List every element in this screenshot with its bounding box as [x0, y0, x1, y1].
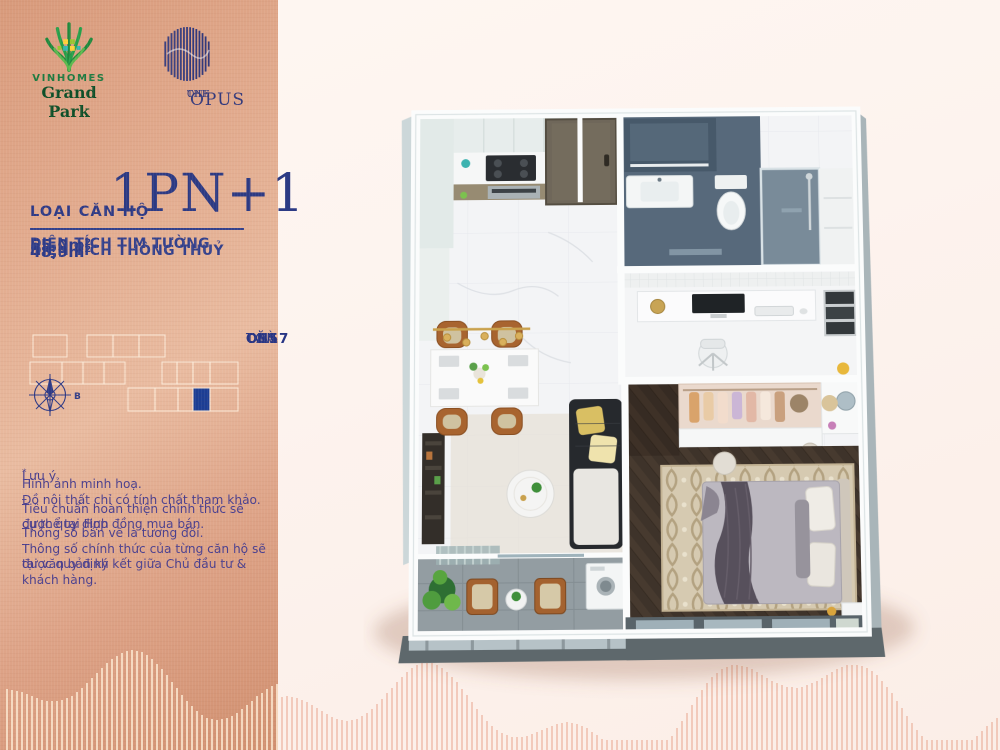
grid-cell — [178, 388, 193, 411]
pillow — [807, 542, 835, 587]
grid-cell — [30, 362, 62, 384]
building-label: TOÀ — [246, 331, 276, 348]
washing-machine — [586, 563, 625, 609]
the-opus-one-logo: THEOPUSONE — [132, 24, 242, 90]
info-panel: VINHOMES Grand Park THEOPUSONE LOẠI CĂN … — [0, 0, 278, 750]
door-handle — [604, 154, 609, 166]
dining-chair — [437, 408, 468, 435]
area-label: DIỆN TÍCH TIM TƯỜNG — [30, 236, 210, 252]
balcony-sliding-door — [498, 555, 584, 556]
utility-niche — [819, 168, 857, 265]
balcony-table — [506, 589, 527, 610]
grid-cell — [104, 362, 125, 384]
wardrobe — [679, 383, 823, 447]
grid-cell — [210, 388, 238, 411]
toilet-tank — [715, 175, 747, 189]
unit-number-label: CĂN — [246, 331, 277, 348]
sofa — [569, 399, 623, 549]
grid-cell — [193, 362, 210, 384]
pouf — [713, 452, 736, 475]
floor-drain — [669, 249, 722, 255]
tv-cabinet — [422, 433, 445, 544]
unit-type-label: LOẠI CĂN HỘ — [30, 204, 149, 220]
vinhomes-grand-park-logo: VINHOMES Grand Park — [26, 20, 112, 121]
floor-plan-render — [370, 82, 926, 688]
unit-number-value: CH17 — [246, 331, 289, 348]
grid-cell — [87, 335, 113, 357]
gold-urn — [651, 299, 665, 313]
unit-type-value: 1PN+1 — [110, 168, 305, 220]
gray-bolster — [795, 500, 811, 579]
grid-cell — [33, 335, 67, 357]
bed — [700, 479, 852, 607]
area-value: 48,9m² — [30, 243, 91, 261]
grid-cell — [128, 388, 155, 411]
grid-cell — [162, 362, 177, 384]
patterned-pillow — [588, 434, 617, 463]
room-study — [621, 272, 862, 385]
grid-cell — [139, 335, 165, 357]
table-plant — [531, 482, 541, 492]
round-mirror — [837, 392, 856, 410]
shower-column — [809, 176, 810, 230]
balcony-chair — [467, 579, 498, 615]
note-paragraph: Tiêu chuẩn hoàn thiện chính thức sẽ được… — [22, 502, 270, 518]
wire-drawers — [823, 290, 856, 337]
compass-icon: B — [26, 370, 84, 420]
coffee-table — [507, 470, 554, 518]
room-bedroom — [622, 446, 867, 622]
grid-cell — [155, 388, 178, 411]
note-paragraph: Hình ảnh minh hoạ.Đồ nội thất chỉ có tín… — [22, 477, 270, 493]
dining-chair — [492, 408, 523, 435]
grid-cell-highlighted — [193, 388, 210, 411]
vinhomes-tree-icon — [40, 20, 98, 72]
grid-cell — [83, 362, 104, 384]
area-value: 55,0m² — [30, 236, 91, 254]
site-grid-diagram — [28, 333, 246, 415]
area-label: DIỆN TÍCH THÔNG THUỶ — [30, 243, 224, 259]
cooktop — [486, 155, 536, 181]
shower-cubicle — [761, 168, 821, 265]
floor-plan-svg — [363, 81, 939, 702]
room-bathroom — [620, 115, 762, 267]
poster: VINHOMES Grand Park THEOPUSONE LOẠI CĂN … — [0, 0, 1000, 750]
note-paragraph: Thông số bản vẽ là tương đối.Thông số ch… — [22, 526, 270, 557]
chaise-cushion — [573, 468, 618, 545]
keyboard — [755, 306, 794, 315]
divider-rule — [30, 228, 244, 230]
grand-park-wordmark: Grand Park — [26, 83, 112, 121]
balcony-chair — [535, 578, 566, 614]
vinhomes-wordmark: VINHOMES — [26, 73, 112, 84]
grid-cell — [113, 335, 139, 357]
area-table: DIỆN TÍCH TIM TƯỜNG55,0m²DIỆN TÍCH THÔNG… — [30, 236, 244, 250]
building-value: OS5 — [246, 331, 279, 348]
bedroom-doorway — [622, 384, 680, 456]
opus-lantern-icon — [161, 24, 213, 84]
grid-cell — [210, 362, 238, 384]
notes: * Lưu ý Hình ảnh minh hoạ.Đồ nội thất ch… — [22, 468, 270, 566]
pillow — [805, 486, 835, 531]
monitor — [692, 294, 745, 314]
compass-north-label: B — [74, 392, 81, 402]
yellow-pillow — [575, 405, 605, 435]
grid-cell — [62, 362, 83, 384]
grid-cell — [177, 362, 193, 384]
